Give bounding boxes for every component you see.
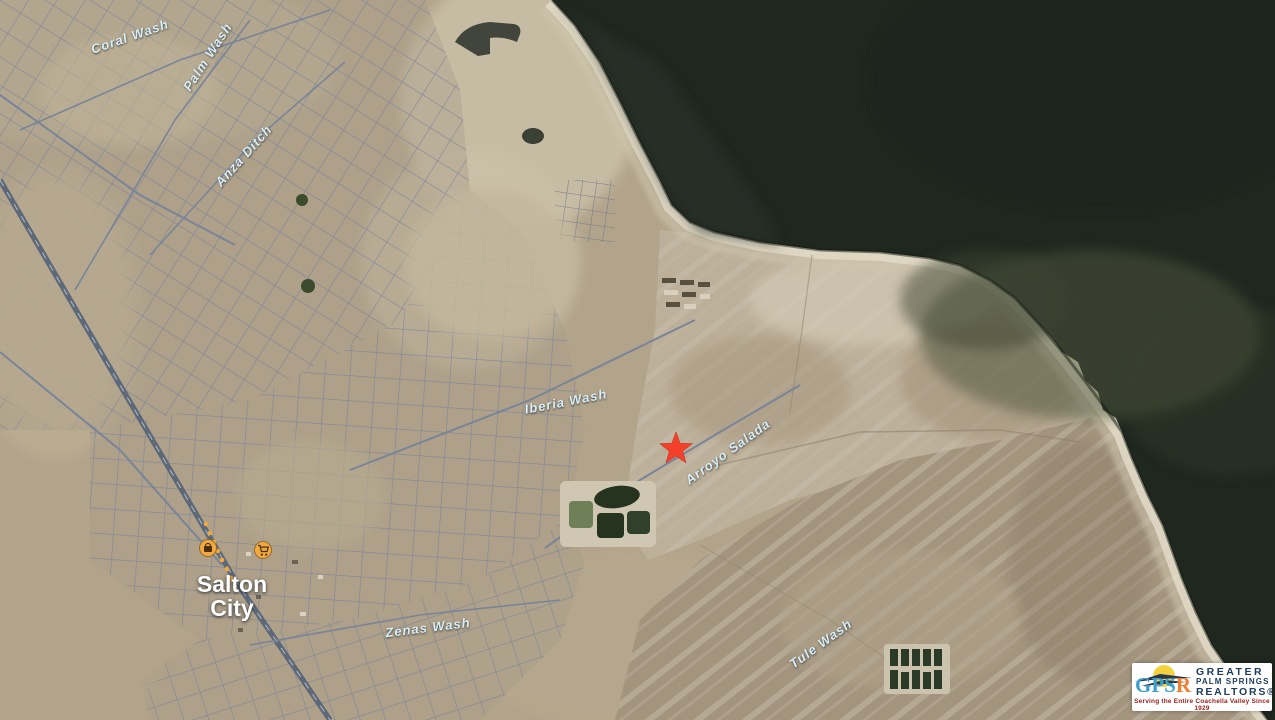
- gpsr-acronym-gps: GPS: [1135, 673, 1176, 697]
- gpsr-logo: GPSR GREATER PALM SPRINGS REALTORS® Serv…: [1132, 663, 1272, 711]
- city-label-line2: City: [210, 595, 254, 621]
- gpsr-name: GREATER PALM SPRINGS REALTORS®: [1194, 665, 1272, 697]
- tree-clump: [296, 194, 308, 206]
- pond-array: [884, 644, 950, 694]
- sewage-ponds: [560, 481, 656, 547]
- gpsr-emblem: GPSR: [1134, 665, 1194, 698]
- map-canvas: Coral Wash Palm Wash Anza Ditch Iberia W…: [0, 0, 1275, 720]
- listing-photo-satellite-map: Coral Wash Palm Wash Anza Ditch Iberia W…: [0, 0, 1275, 720]
- gpsr-tagline: Serving the Entire Coachella Valley Sinc…: [1132, 698, 1272, 711]
- poi-convenience-store-icon: [200, 540, 217, 557]
- gpsr-logo-top: GPSR GREATER PALM SPRINGS REALTORS®: [1132, 663, 1272, 698]
- gpsr-acronym-r: R: [1176, 673, 1191, 697]
- gpsr-name-line3: REALTORS®: [1196, 687, 1272, 698]
- tree-clump: [301, 279, 315, 293]
- city-label-line1: Salton: [197, 571, 267, 597]
- small-pond: [522, 128, 544, 144]
- poi-shopping-cart-icon: [255, 542, 272, 559]
- gpsr-acronym: GPSR: [1135, 675, 1191, 696]
